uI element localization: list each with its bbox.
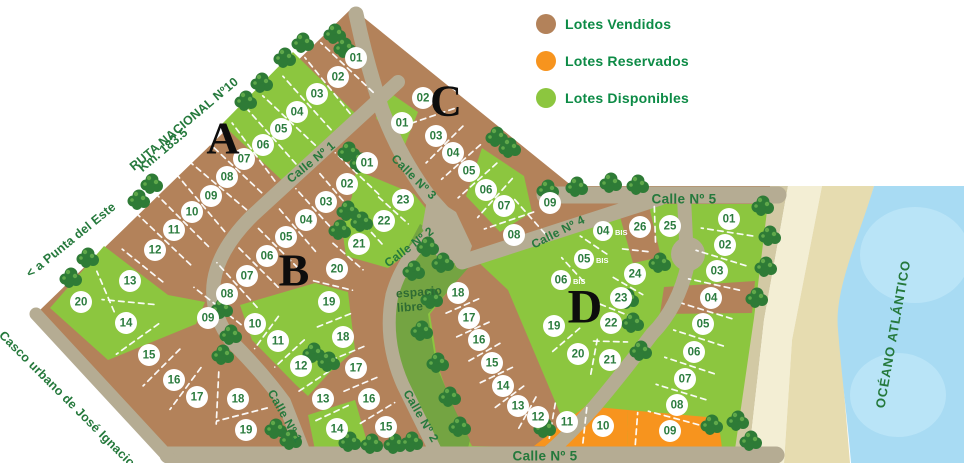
lot-number: 07 <box>679 374 692 386</box>
lot-number: 12 <box>149 245 162 257</box>
lot-C06[interactable]: 06 <box>475 179 497 201</box>
lot-D05[interactable]: 05 <box>692 313 714 335</box>
lot-number: 17 <box>463 313 476 325</box>
section-letter-C: C <box>430 77 462 126</box>
lot-number: 06 <box>688 347 701 359</box>
lot-number: 06 <box>480 185 493 197</box>
lot-B20[interactable]: 20 <box>326 258 348 280</box>
lot-number: 09 <box>202 313 215 325</box>
lot-C01[interactable]: 01 <box>391 112 413 134</box>
lot-B15[interactable]: 15 <box>375 416 397 438</box>
legend-item-disponibles: Lotes Disponibles <box>536 88 689 108</box>
lot-number: 14 <box>331 424 344 436</box>
lot-D02[interactable]: 02 <box>714 234 736 256</box>
lot-B23[interactable]: 23 <box>392 189 414 211</box>
lot-A12[interactable]: 12 <box>144 239 166 261</box>
lot-number: 17 <box>191 392 204 404</box>
legend-item-reservados: Lotes Reservados <box>536 51 689 71</box>
lot-number: 08 <box>221 172 234 184</box>
lot-B07[interactable]: 07 <box>236 265 258 287</box>
lot-A04[interactable]: 04 <box>286 101 308 123</box>
lot-number: 04 <box>447 148 460 160</box>
lot-B09[interactable]: 09 <box>197 307 219 329</box>
lot-number: 21 <box>353 239 366 251</box>
lot-A09[interactable]: 09 <box>200 185 222 207</box>
lot-A05[interactable]: 05 <box>270 118 292 140</box>
tree-cluster-icon <box>274 48 297 69</box>
lot-number: 04 <box>300 215 313 227</box>
lot-number: 15 <box>380 422 393 434</box>
street-label-7: Calle Nº 5 <box>513 449 578 463</box>
lot-A20[interactable]: 20 <box>70 291 92 313</box>
lot-number: 06 <box>555 275 568 287</box>
lot-B21[interactable]: 21 <box>348 233 370 255</box>
lot-number: 09 <box>664 426 677 438</box>
lot-number: 13 <box>124 276 137 288</box>
lot-B18[interactable]: 18 <box>332 326 354 348</box>
lot-B06[interactable]: 06 <box>256 245 278 267</box>
lot-number: 11 <box>168 225 181 237</box>
lot-A08[interactable]: 08 <box>216 166 238 188</box>
lot-B11[interactable]: 11 <box>267 330 289 352</box>
lot-number: 16 <box>363 394 376 406</box>
lot-B13[interactable]: 13 <box>312 388 334 410</box>
lot-D03[interactable]: 03 <box>706 260 728 282</box>
lot-number: 02 <box>341 179 354 191</box>
lot-number: 10 <box>186 207 199 219</box>
bis-suffix: BIS <box>615 228 628 237</box>
lot-C09[interactable]: 09 <box>539 192 561 214</box>
lot-C05[interactable]: 05 <box>458 160 480 182</box>
lot-A01[interactable]: 01 <box>345 47 367 69</box>
lot-D21[interactable]: 21 <box>599 349 621 371</box>
map-svg: 0102030405060708091011121320141516171819… <box>0 0 964 463</box>
lot-number: 24 <box>629 269 642 281</box>
lot-number: 05 <box>578 254 591 266</box>
lot-A13[interactable]: 13 <box>119 270 141 292</box>
lot-number: 18 <box>337 332 350 344</box>
lot-C03[interactable]: 03 <box>425 125 447 147</box>
lot-D14[interactable]: 14 <box>492 375 514 397</box>
lot-number: 25 <box>664 221 677 233</box>
lot-number: 12 <box>532 412 545 424</box>
tree-cluster-icon <box>292 33 315 54</box>
legend-item-vendidos: Lotes Vendidos <box>536 14 689 34</box>
culdesac-bulb <box>671 237 705 271</box>
lot-number: 12 <box>295 361 308 373</box>
lot-number: 09 <box>205 191 218 203</box>
ocean-highlight <box>850 353 946 437</box>
lot-number: 18 <box>452 288 465 300</box>
lot-number: 01 <box>396 118 409 130</box>
lot-number: 03 <box>320 197 333 209</box>
lot-A19[interactable]: 19 <box>235 419 257 441</box>
disponibles-dot-icon <box>536 88 556 108</box>
lot-number: 06 <box>261 251 274 263</box>
lot-B14[interactable]: 14 <box>326 418 348 440</box>
lot-number: 19 <box>240 425 253 437</box>
vendidos-dot-icon <box>536 14 556 34</box>
lot-number: 04 <box>705 293 718 305</box>
reservados-dot-icon <box>536 51 556 71</box>
lot-number: 08 <box>671 400 684 412</box>
lot-number: 07 <box>498 201 511 213</box>
lot-map-stage: 0102030405060708091011121320141516171819… <box>0 0 964 463</box>
lot-number: 02 <box>332 72 345 84</box>
lot-B03[interactable]: 03 <box>315 191 337 213</box>
lot-number: 06 <box>257 140 270 152</box>
lot-number: 01 <box>350 53 363 65</box>
tree-cluster-icon <box>251 73 274 94</box>
lot-number: 17 <box>350 363 363 375</box>
lot-B19[interactable]: 19 <box>318 291 340 313</box>
lot-D16[interactable]: 16 <box>468 329 490 351</box>
lot-number: 05 <box>275 124 288 136</box>
lot-D20[interactable]: 20 <box>567 343 589 365</box>
lot-C08[interactable]: 08 <box>503 224 525 246</box>
lot-number: 20 <box>75 297 88 309</box>
lot-D13[interactable]: 13 <box>507 395 529 417</box>
lot-number: 15 <box>143 350 156 362</box>
lot-B02[interactable]: 02 <box>336 173 358 195</box>
lot-number: 13 <box>512 401 525 413</box>
lot-A06[interactable]: 06 <box>252 134 274 156</box>
bis-suffix: BIS <box>596 256 609 265</box>
lot-number: 01 <box>361 158 374 170</box>
lot-number: 05 <box>463 166 476 178</box>
lot-number: 04 <box>291 107 304 119</box>
tree-cluster-icon <box>60 268 83 289</box>
lot-D25[interactable]: 25 <box>659 215 681 237</box>
street-label-6: Calle Nº 5 <box>652 192 717 207</box>
lot-number: 03 <box>430 131 443 143</box>
lot-number: 05 <box>697 319 710 331</box>
lot-number: 10 <box>597 421 610 433</box>
lot-A15[interactable]: 15 <box>138 344 160 366</box>
lot-A17[interactable]: 17 <box>186 386 208 408</box>
section-letter-A: A <box>206 113 239 164</box>
lot-number: 03 <box>711 266 724 278</box>
lot-number: 01 <box>723 214 736 226</box>
lot-B22[interactable]: 22 <box>373 210 395 232</box>
lot-number: 05 <box>280 232 293 244</box>
lot-number: 08 <box>508 230 521 242</box>
lot-number: 03 <box>311 89 324 101</box>
lot-number: 20 <box>572 349 585 361</box>
lot-D12[interactable]: 12 <box>527 406 549 428</box>
lot-number: 16 <box>168 375 181 387</box>
lot-number: 23 <box>397 195 410 207</box>
lot-A16[interactable]: 16 <box>163 369 185 391</box>
lot-number: 13 <box>317 394 330 406</box>
lot-number: 11 <box>561 417 574 429</box>
lot-B10[interactable]: 10 <box>244 313 266 335</box>
lot-number: 10 <box>249 319 262 331</box>
lot-D19[interactable]: 19 <box>543 315 565 337</box>
lot-B17[interactable]: 17 <box>345 357 367 379</box>
lot-D08[interactable]: 08 <box>666 394 688 416</box>
lot-D11[interactable]: 11 <box>556 411 578 433</box>
lot-number: 22 <box>605 318 618 330</box>
lot-A10[interactable]: 10 <box>181 201 203 223</box>
lot-A11[interactable]: 11 <box>163 219 185 241</box>
lot-B01[interactable]: 01 <box>356 152 378 174</box>
lot-number: 19 <box>323 297 336 309</box>
lot-D01[interactable]: 01 <box>718 208 740 230</box>
lot-number: 08 <box>221 289 234 301</box>
legend-label-disponibles: Lotes Disponibles <box>565 90 689 106</box>
legend: Lotes Vendidos Lotes Reservados Lotes Di… <box>536 14 689 125</box>
lot-A14[interactable]: 14 <box>115 312 137 334</box>
lot-D24[interactable]: 24 <box>624 263 646 285</box>
lot-A03[interactable]: 03 <box>306 83 328 105</box>
lot-number: 26 <box>634 222 647 234</box>
lot-number: 09 <box>544 198 557 210</box>
lot-number: 21 <box>604 355 617 367</box>
lot-D07[interactable]: 07 <box>674 368 696 390</box>
lot-number: 07 <box>241 271 254 283</box>
lot-D10[interactable]: 10 <box>592 415 614 437</box>
section-letter-D: D <box>568 281 603 334</box>
tree-cluster-icon <box>141 174 164 195</box>
lot-C07[interactable]: 07 <box>493 195 515 217</box>
lot-D06[interactable]: 06 <box>683 341 705 363</box>
legend-label-reservados: Lotes Reservados <box>565 53 689 69</box>
lot-number: 02 <box>417 93 430 105</box>
lot-D17[interactable]: 17 <box>458 307 480 329</box>
lot-B04[interactable]: 04 <box>295 209 317 231</box>
lot-D18[interactable]: 18 <box>447 282 469 304</box>
lot-number: 04 <box>597 226 610 238</box>
area-label-espacio-line2: libre <box>396 299 423 315</box>
lot-number: 16 <box>473 335 486 347</box>
lot-number: 18 <box>232 394 245 406</box>
lot-B12[interactable]: 12 <box>290 355 312 377</box>
tree-cluster-icon <box>77 248 100 269</box>
legend-label-vendidos: Lotes Vendidos <box>565 16 671 32</box>
lot-number: 15 <box>486 358 499 370</box>
lot-D15[interactable]: 15 <box>481 352 503 374</box>
lot-B08[interactable]: 08 <box>216 283 238 305</box>
lot-B16[interactable]: 16 <box>358 388 380 410</box>
section-letter-B: B <box>279 245 310 296</box>
lot-number: 11 <box>272 336 285 348</box>
lot-number: 23 <box>615 293 628 305</box>
lot-D22[interactable]: 22 <box>600 312 622 334</box>
lot-D09[interactable]: 09 <box>659 420 681 442</box>
lot-D04[interactable]: 04 <box>700 287 722 309</box>
lot-C04[interactable]: 04 <box>442 142 464 164</box>
lot-D26[interactable]: 26 <box>629 216 651 238</box>
lot-number: 19 <box>548 321 561 333</box>
lot-number: 14 <box>120 318 133 330</box>
lot-number: 14 <box>497 381 510 393</box>
lot-number: 20 <box>331 264 344 276</box>
lot-D23[interactable]: 23 <box>610 287 632 309</box>
lot-A18[interactable]: 18 <box>227 388 249 410</box>
lot-number: 22 <box>378 216 391 228</box>
lot-number: 02 <box>719 240 732 252</box>
lot-A02[interactable]: 02 <box>327 66 349 88</box>
